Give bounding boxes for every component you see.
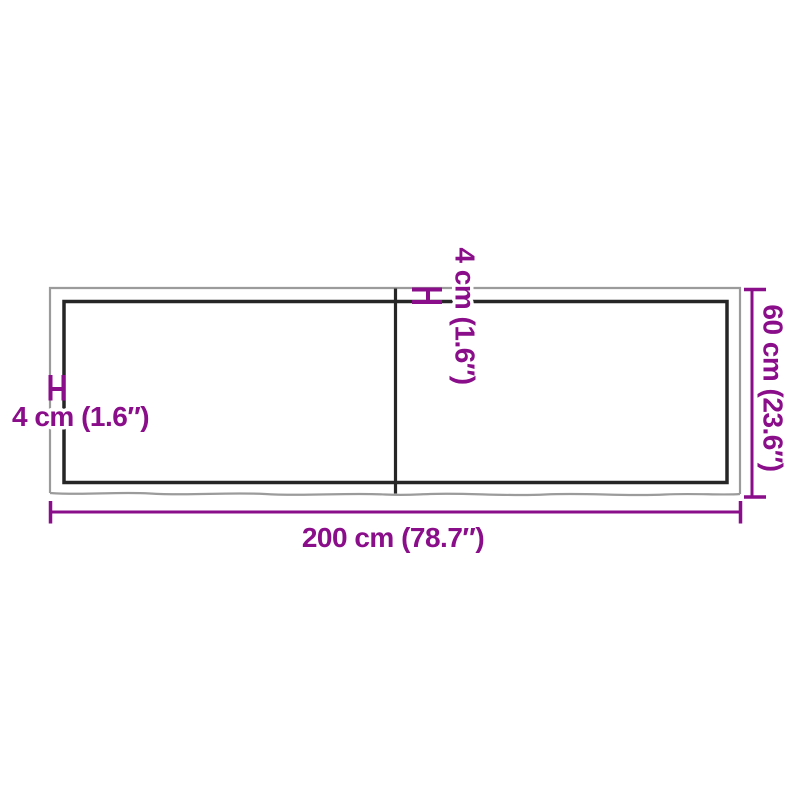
thickness-top-label: 4 cm (1.6″)	[450, 247, 481, 384]
dimension-marks	[49, 288, 767, 524]
dimension-diagram-page: 200 cm (78.7″) 4 cm (1.6″) 4 cm (1.6″) 6…	[0, 0, 800, 800]
tabletop-dimension-diagram: 200 cm (78.7″) 4 cm (1.6″) 4 cm (1.6″) 6…	[0, 0, 800, 800]
thickness-left-label: 4 cm (1.6″)	[12, 401, 149, 432]
thickness-top-mark	[412, 288, 442, 305]
thickness-left-mark	[49, 375, 66, 401]
height-dimension-label: 60 cm (23.6″)	[758, 304, 789, 471]
width-dimension-label: 200 cm (78.7″)	[302, 522, 484, 553]
